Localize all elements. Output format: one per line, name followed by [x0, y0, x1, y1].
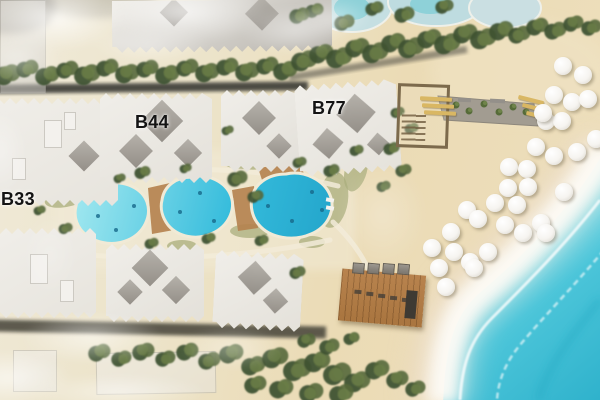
- roof-vent: [60, 280, 74, 302]
- pool-speck: [310, 190, 314, 194]
- beach-umbrella: [574, 66, 592, 84]
- walkway-plant: [496, 109, 503, 116]
- roof-plane: [119, 134, 153, 168]
- walkway-plant: [481, 101, 488, 108]
- pool-speck: [132, 204, 136, 208]
- beach-umbrella: [508, 196, 526, 214]
- beach-umbrella: [545, 86, 563, 104]
- pool-speck: [114, 228, 118, 232]
- beach-umbrella: [563, 93, 581, 111]
- roof-plane: [238, 261, 272, 295]
- beach-umbrella: [587, 130, 600, 148]
- beach-umbrella: [519, 178, 537, 196]
- pool-center: [161, 176, 232, 237]
- beach-pergola: [396, 83, 450, 149]
- roof-vent: [44, 120, 62, 148]
- pool-east: [251, 173, 332, 238]
- pool-speck: [290, 219, 294, 223]
- pool-speck: [320, 208, 324, 212]
- bar-furniture: [397, 263, 410, 275]
- pool-speck: [178, 210, 182, 214]
- beach-umbrella: [555, 183, 573, 201]
- beach-umbrella: [545, 147, 563, 165]
- pergola-slats: [401, 112, 426, 141]
- label-b77: B77: [312, 98, 346, 119]
- roof-plane: [266, 133, 291, 158]
- building-b77: [294, 79, 402, 178]
- beach-umbrella: [437, 278, 455, 296]
- context-building-north: [112, 0, 332, 53]
- beach-umbrella: [465, 259, 483, 277]
- bar-furniture: [367, 263, 380, 275]
- beach-umbrella: [579, 90, 597, 108]
- building-south-center: [106, 244, 204, 322]
- beach-umbrella: [499, 179, 517, 197]
- beach-umbrella: [553, 112, 571, 130]
- context-building-south-b: [96, 351, 217, 395]
- beach-umbrella: [442, 223, 460, 241]
- bar-table: [366, 292, 373, 297]
- beach-umbrella: [423, 239, 441, 257]
- roof-plane: [117, 279, 142, 304]
- beach-umbrella: [469, 210, 487, 228]
- roof-vent: [64, 112, 76, 130]
- beach-umbrella: [568, 143, 586, 161]
- walkway-plant: [466, 108, 473, 115]
- bar-table: [378, 294, 385, 299]
- building-b44: [100, 93, 212, 183]
- site-plan: B33 B44 B77: [0, 0, 600, 400]
- beach-umbrella: [496, 216, 514, 234]
- bar-table: [354, 290, 361, 295]
- roof-plane: [367, 133, 390, 156]
- beach-umbrella: [537, 224, 555, 242]
- roof-plane: [160, 0, 188, 27]
- roof-plane: [313, 128, 344, 159]
- pool-speck: [198, 191, 202, 195]
- beach-umbrella: [430, 259, 448, 277]
- bar-furniture: [352, 262, 365, 274]
- building-south-east: [212, 250, 304, 332]
- roof-plane: [174, 139, 202, 167]
- label-b44: B44: [135, 112, 169, 133]
- beach-umbrella: [445, 243, 463, 261]
- pool-speck: [212, 219, 216, 223]
- pool-speck: [266, 204, 270, 208]
- building-south-west: [0, 228, 96, 318]
- beach-umbrella: [479, 243, 497, 261]
- pool-speck: [96, 214, 100, 218]
- context-building-south-a: [13, 350, 57, 392]
- beach-umbrella: [486, 194, 504, 212]
- bar-table: [390, 296, 397, 301]
- beach-umbrella: [514, 224, 532, 242]
- beach-umbrella: [518, 160, 536, 178]
- roof-plane: [242, 101, 276, 135]
- roof-plane: [132, 250, 169, 287]
- beach-umbrella: [534, 104, 552, 122]
- roof-plane: [162, 276, 190, 304]
- beach-umbrella: [500, 158, 518, 176]
- roof-vent: [30, 254, 48, 284]
- context-building-northwest: [0, 0, 46, 94]
- building-north-center: [221, 90, 301, 172]
- beach-umbrella: [527, 138, 545, 156]
- roof-vent: [12, 158, 26, 180]
- roof-plane: [263, 288, 288, 313]
- upper-pools: [312, 0, 541, 32]
- roof-plane: [245, 0, 279, 31]
- label-b33: B33: [1, 189, 35, 210]
- roof-plane: [68, 140, 99, 171]
- beach-umbrella: [554, 57, 572, 75]
- beach-bar-deck: [338, 268, 426, 327]
- walkway-plant: [510, 104, 517, 111]
- bar-furniture: [382, 263, 395, 275]
